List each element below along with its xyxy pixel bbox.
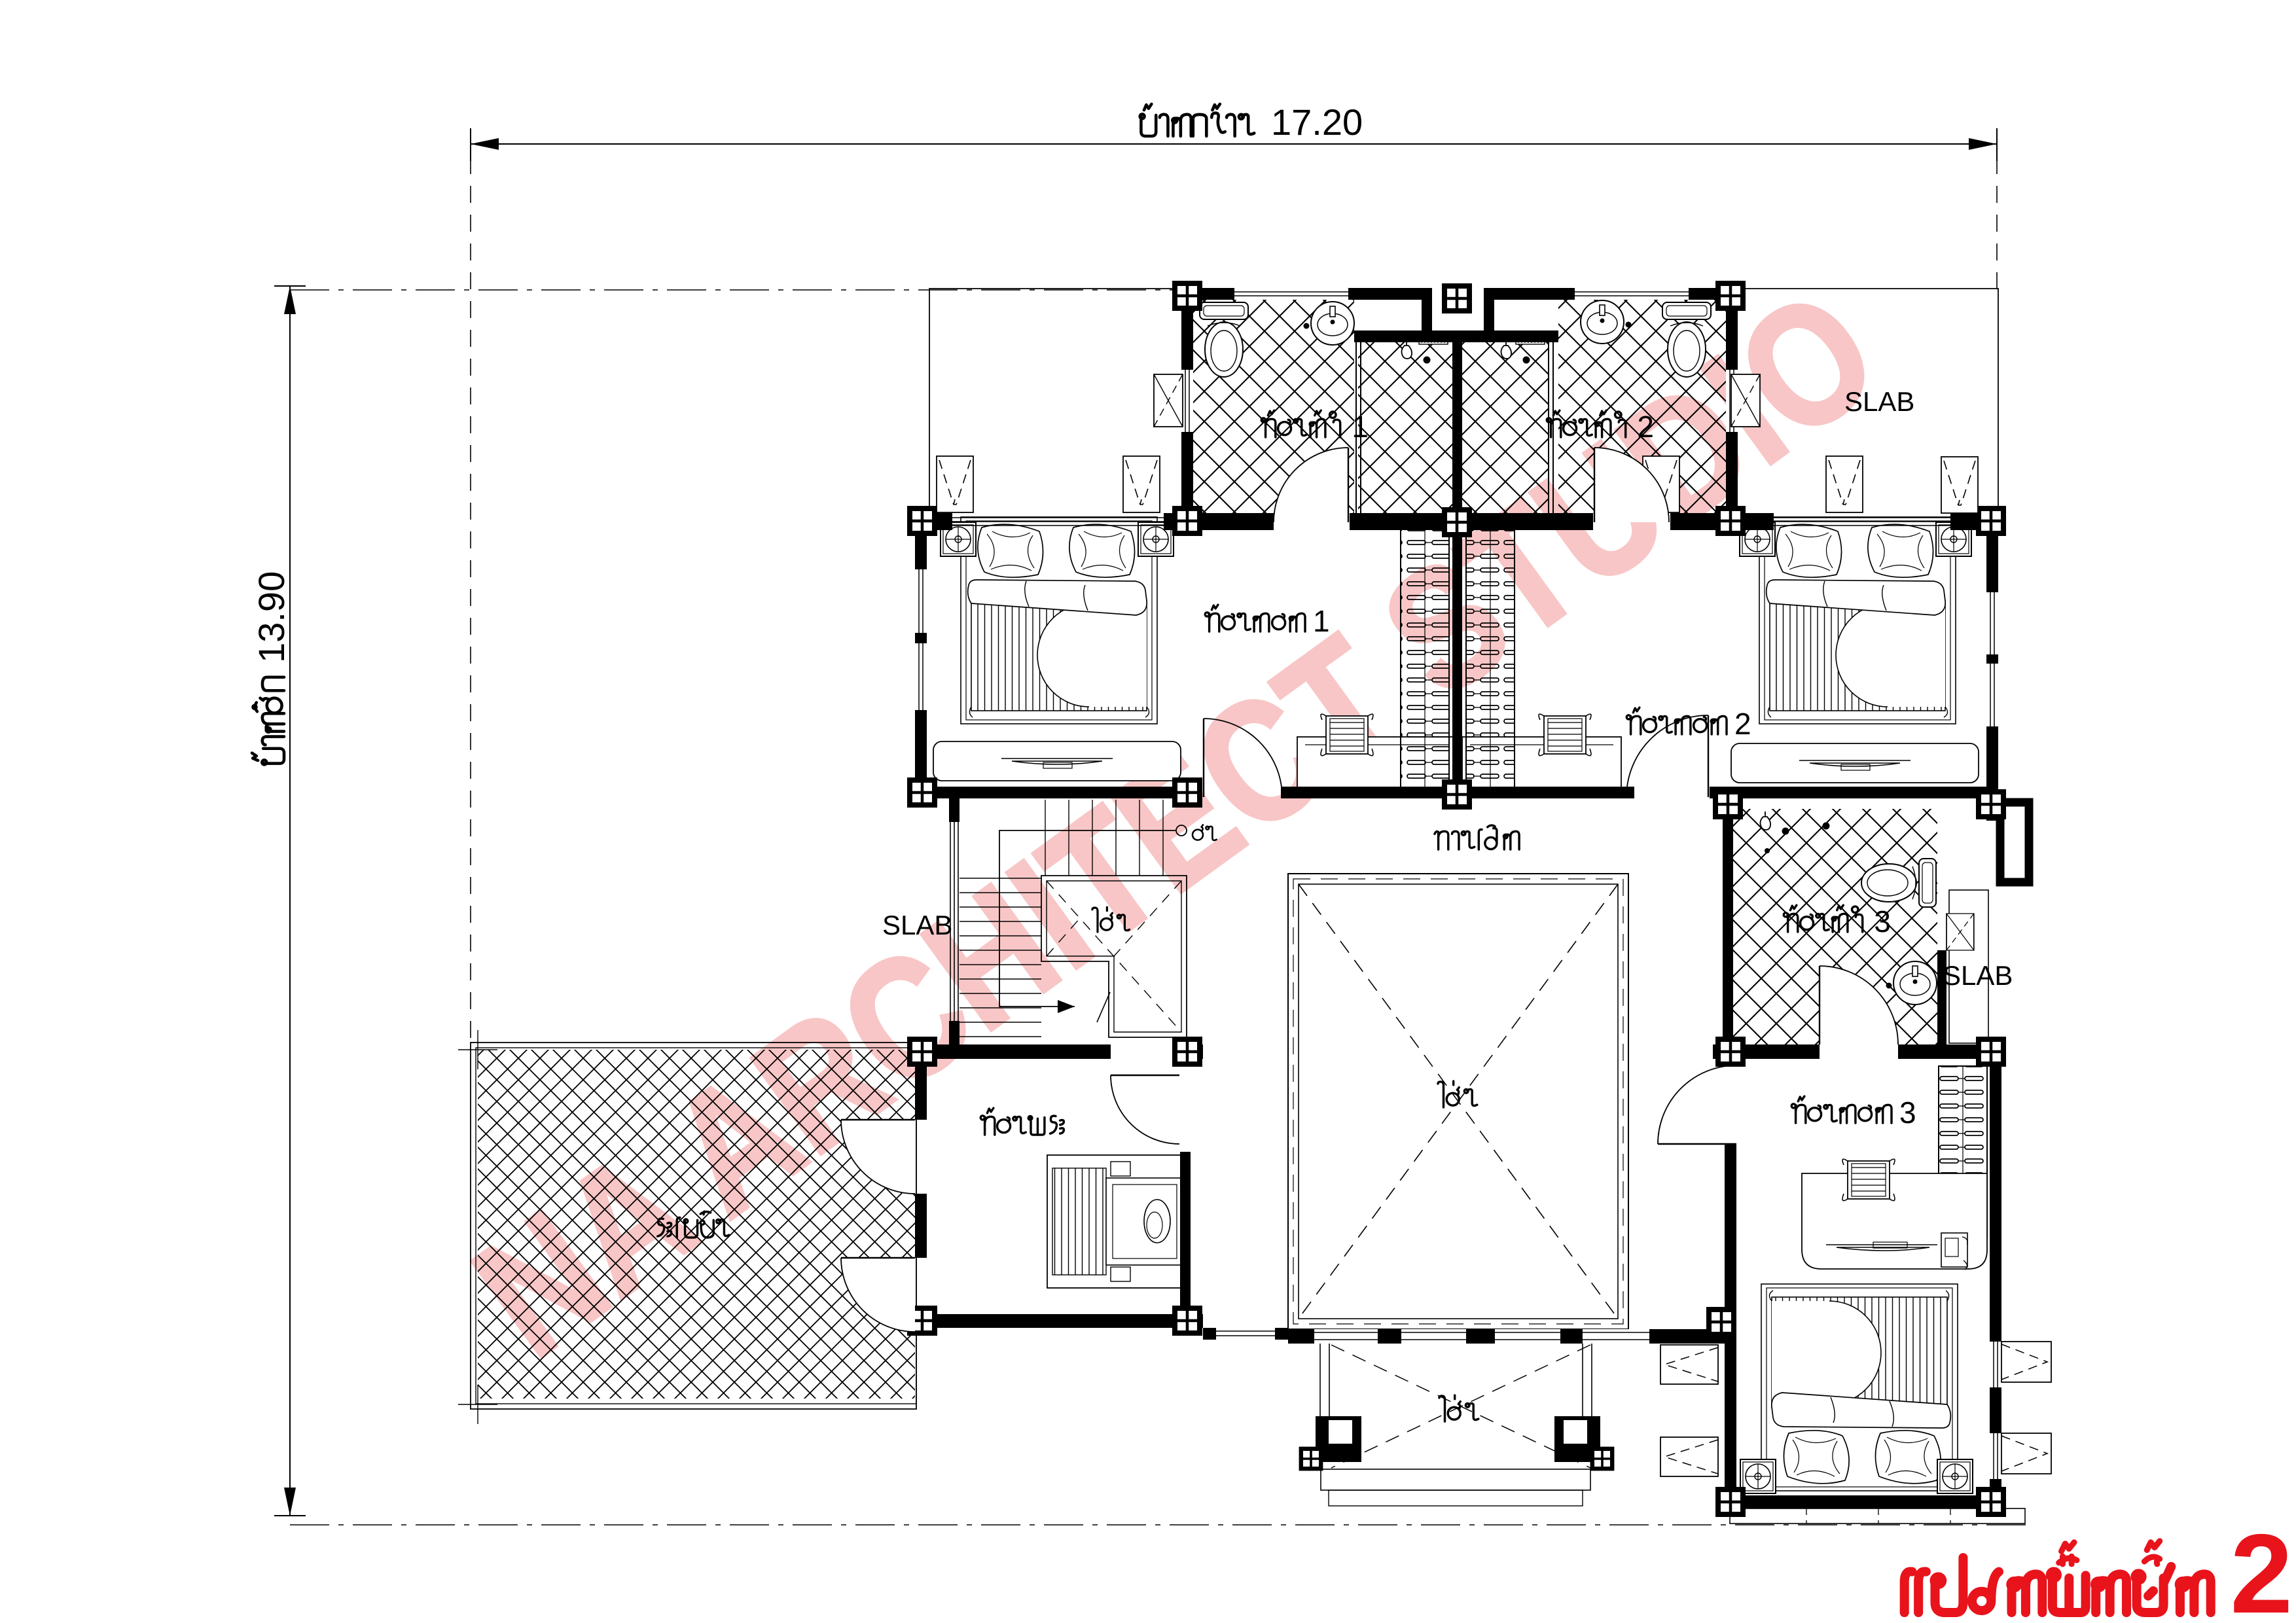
svg-text:3: 3 (1874, 904, 1891, 938)
svg-text:SLAB: SLAB (1943, 960, 2013, 991)
svg-text:2: 2 (2230, 1511, 2293, 1623)
svg-text:SLAB: SLAB (882, 910, 952, 940)
svg-text:1: 1 (1313, 604, 1330, 638)
svg-text:13.90: 13.90 (251, 571, 292, 663)
svg-text:SLAB: SLAB (1844, 386, 1914, 417)
svg-text:1: 1 (1352, 410, 1369, 444)
svg-text:2: 2 (1637, 410, 1654, 444)
svg-text:17.20: 17.20 (1271, 101, 1363, 143)
svg-text:3: 3 (1899, 1096, 1916, 1130)
svg-text:2: 2 (1734, 707, 1751, 741)
